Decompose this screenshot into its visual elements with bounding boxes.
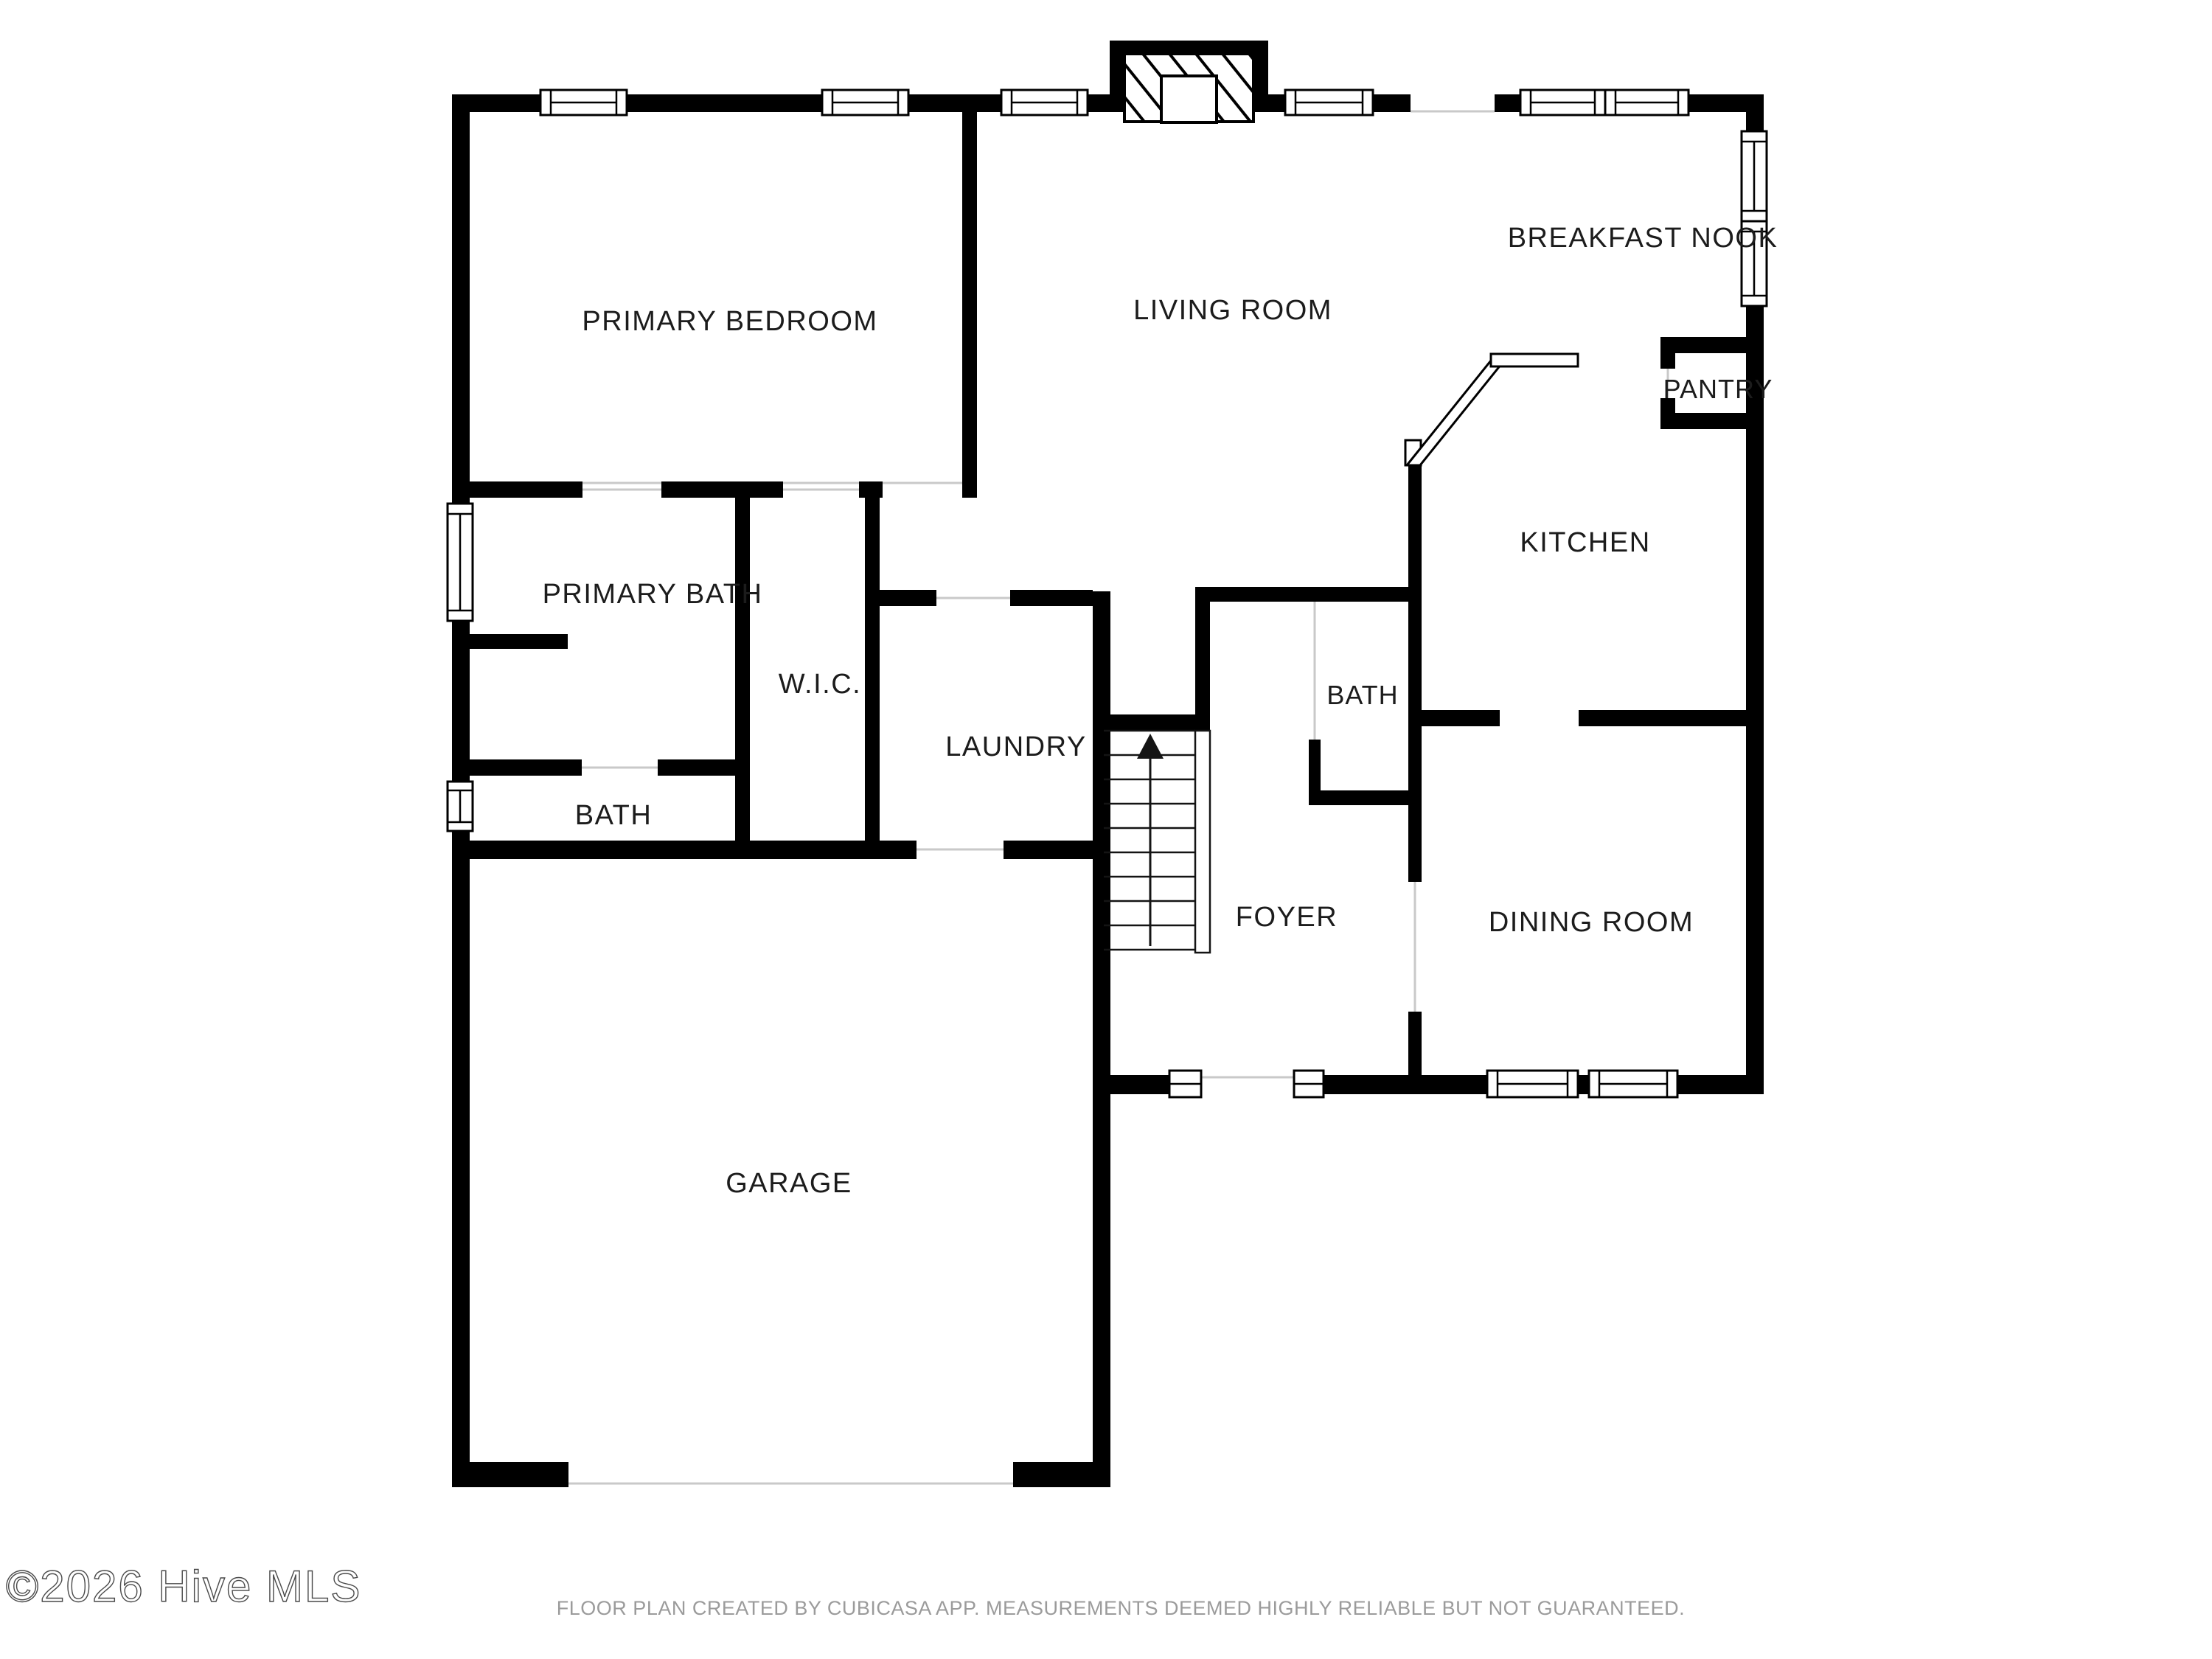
window-icon — [1742, 131, 1767, 221]
room-label-breakfast-nook: BREAKFAST NOOK — [1508, 223, 1778, 254]
window-icon — [1520, 90, 1605, 115]
window-icon — [1589, 1071, 1677, 1097]
staircase — [1104, 731, 1210, 953]
window-icon — [1487, 1071, 1578, 1097]
room-label-kitchen: KITCHEN — [1520, 527, 1650, 558]
floor-plan-drawing: PRIMARY BEDROOM LIVING ROOM BREAKFAST NO… — [0, 0, 2212, 1659]
exterior-walls — [452, 94, 1764, 1487]
window-icon — [1294, 1071, 1324, 1097]
wall — [627, 94, 822, 112]
wall — [735, 498, 750, 841]
fireplace-icon — [1084, 41, 1310, 129]
room-label-dining-room: DINING ROOM — [1489, 907, 1694, 938]
wall — [1373, 94, 1411, 112]
floor-plan-canvas: PRIMARY BEDROOM LIVING ROOM BREAKFAST NO… — [0, 0, 2212, 1659]
wall — [1210, 587, 1422, 602]
wall — [1088, 94, 1110, 112]
wall — [658, 759, 750, 776]
wall — [470, 759, 582, 776]
wall — [1422, 710, 1500, 726]
wall — [1578, 1075, 1589, 1094]
window-icon — [822, 90, 908, 115]
wall — [1408, 1012, 1422, 1075]
wall — [452, 621, 470, 782]
wall — [880, 590, 936, 606]
window-icon — [1285, 90, 1373, 115]
mls-watermark: ©2026 Hive MLS — [6, 1562, 361, 1611]
wall — [1324, 1075, 1487, 1094]
window-icon — [448, 782, 473, 831]
wall — [908, 94, 1001, 112]
wall — [1309, 790, 1408, 805]
wall — [1579, 710, 1746, 726]
wall — [452, 841, 917, 859]
wall — [452, 831, 470, 1487]
room-label-foyer: FOYER — [1236, 902, 1338, 933]
wall — [661, 481, 783, 498]
wall — [1660, 337, 1675, 369]
room-label-bath: BATH — [575, 800, 653, 831]
wall — [1746, 94, 1764, 131]
window-icon — [1605, 90, 1688, 115]
disclaimer-text: FLOOR PLAN CREATED BY CUBICASA APP. MEAS… — [557, 1597, 1685, 1619]
window-icon — [540, 90, 627, 115]
room-label-laundry: LAUNDRY — [945, 731, 1086, 762]
wall — [1093, 1075, 1169, 1094]
room-label-pantry: PANTRY — [1663, 374, 1773, 404]
wall — [1010, 590, 1093, 606]
window-icon — [1001, 90, 1088, 115]
room-label-primary-bedroom: PRIMARY BEDROOM — [582, 306, 877, 337]
window-icon — [448, 504, 473, 621]
kitchen-counter — [1405, 354, 1578, 465]
room-label-half-bath: BATH — [1326, 680, 1398, 710]
wall — [1104, 714, 1210, 731]
wall — [470, 634, 568, 649]
room-label-living-room: LIVING ROOM — [1133, 295, 1332, 326]
wall — [962, 112, 977, 498]
wall — [1408, 465, 1422, 882]
wall — [452, 1462, 568, 1487]
wall — [1195, 587, 1210, 731]
room-label-garage: GARAGE — [726, 1168, 852, 1199]
window-icon — [1169, 1071, 1201, 1097]
wall — [1746, 306, 1764, 1094]
wall — [1004, 841, 1110, 859]
room-label-wic: W.I.C. — [779, 669, 861, 700]
room-label-primary-bath: PRIMARY BATH — [543, 579, 763, 610]
stairs-up-arrow-icon — [1137, 734, 1164, 946]
wall — [470, 481, 582, 498]
wall — [1495, 94, 1520, 112]
wall — [452, 94, 470, 504]
wall — [865, 481, 880, 841]
wall — [1268, 94, 1285, 112]
